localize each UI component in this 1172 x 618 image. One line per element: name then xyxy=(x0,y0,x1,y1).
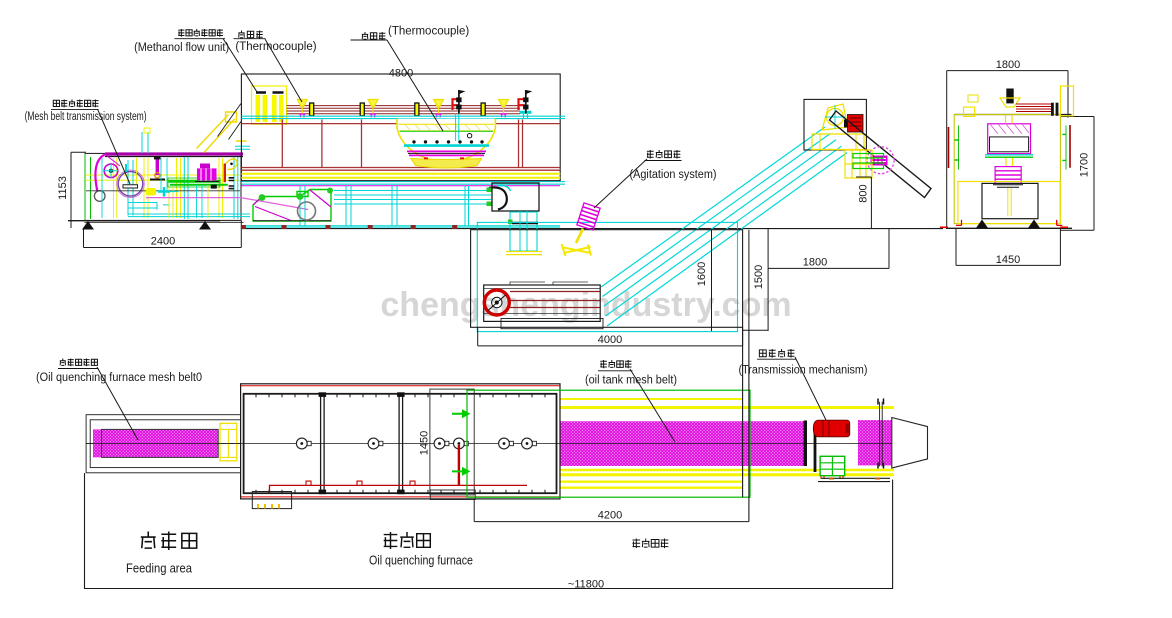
svg-text:(Thermocouple): (Thermocouple) xyxy=(235,41,316,53)
svg-text:4200: 4200 xyxy=(598,510,622,522)
svg-text:1450: 1450 xyxy=(419,431,431,455)
svg-text:4000: 4000 xyxy=(598,334,622,346)
svg-text:1153: 1153 xyxy=(57,176,69,200)
svg-text:1800: 1800 xyxy=(803,256,827,268)
svg-text:(Oil quenching furnace mesh be: (Oil quenching furnace mesh belt0 xyxy=(36,372,202,384)
svg-text:~11800: ~11800 xyxy=(568,579,604,591)
svg-text:1800: 1800 xyxy=(996,59,1020,71)
svg-text:(oil tank mesh belt): (oil tank mesh belt) xyxy=(585,374,677,386)
svg-text:(Methanol flow unit): (Methanol flow unit) xyxy=(134,42,229,54)
svg-text:Feeding area: Feeding area xyxy=(126,562,192,576)
svg-text:1600: 1600 xyxy=(696,262,708,286)
svg-text:1500: 1500 xyxy=(753,265,765,289)
svg-text:800: 800 xyxy=(858,184,870,202)
svg-text:(Agitation system): (Agitation system) xyxy=(630,169,717,181)
svg-text:1700: 1700 xyxy=(1079,153,1091,177)
svg-text:1450: 1450 xyxy=(996,254,1020,266)
svg-text:Oil quenching furnace: Oil quenching furnace xyxy=(369,554,473,568)
svg-text:2400: 2400 xyxy=(151,236,175,248)
svg-text:(Mesh belt transmission system: (Mesh belt transmission system) xyxy=(25,111,147,123)
svg-text:(Transmission mechanism): (Transmission mechanism) xyxy=(739,365,868,377)
svg-text:(Thermocouple): (Thermocouple) xyxy=(388,26,469,38)
svg-text:4800: 4800 xyxy=(389,68,413,80)
